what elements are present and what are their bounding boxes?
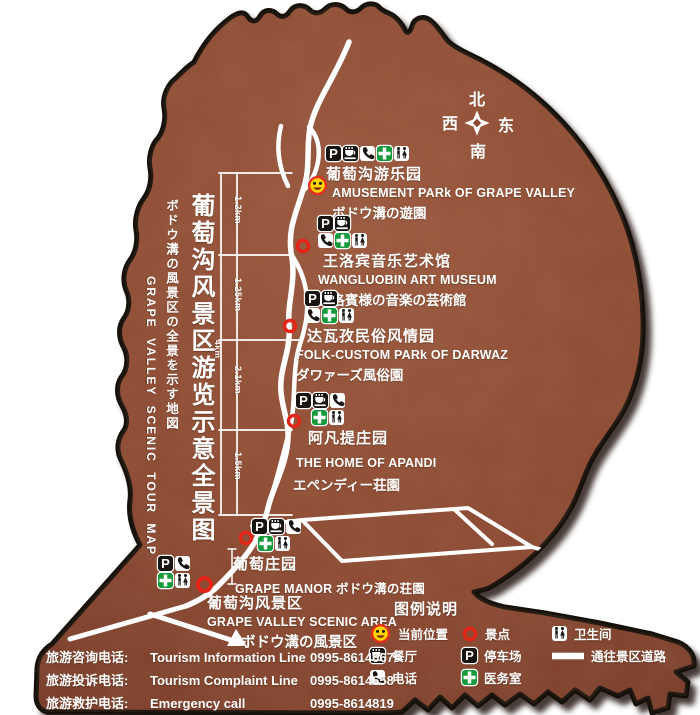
hotline-number: 0995-8614067 [310, 650, 394, 665]
scenic-spot-marker [295, 238, 311, 254]
scenic-spot-icon [462, 626, 478, 642]
scenic-spot-icon [195, 575, 214, 594]
poi-name-jp: エペンディー荘園 [293, 474, 436, 494]
facility-icon-row: P [326, 146, 575, 161]
medical-icon [377, 146, 392, 161]
compass-west-label: 西 [442, 110, 458, 134]
poi-scenic-area-entrance: 葡萄沟风景区 GRAPE VALLEY SCENIC AREA ボドウ溝の風景区 [207, 591, 397, 652]
parking-icon: P [326, 146, 341, 161]
tour-map-screenshot: 葡萄沟风景区游览示意全景图 ボドウ溝の風景区の全景を示す地図 GRAPE VAL… [0, 0, 700, 715]
facility-icon-row: P [252, 519, 425, 534]
scenic-spot-marker [195, 575, 214, 594]
legend-title: 图例说明 [394, 598, 666, 619]
hotline-row: 旅游救护电话:Emergency call0995-8614819 [46, 693, 394, 708]
restaurant-icon [313, 393, 328, 408]
distance-label-total: 4km [213, 340, 223, 359]
map-title-japanese: ボドウ溝の風景区の全景を示す地図 [162, 199, 181, 431]
poi-name-en: AMUSEMENT PARk OF GRAPE VALLEY [332, 186, 575, 200]
hotline-label-cn: 旅游救护电话: [46, 693, 150, 712]
poi-name-cn: 葡萄庄园 [233, 553, 425, 574]
medical-icon [335, 233, 350, 248]
restaurant-icon [343, 146, 358, 161]
legend-column: 景点P停车场医务室 [462, 625, 552, 686]
toilet-icon [175, 573, 190, 588]
facility-icon-row: P [296, 393, 436, 408]
svg-text:P: P [321, 216, 330, 231]
current-location-icon [307, 175, 328, 196]
medical-icon [312, 410, 327, 425]
phone-icon [286, 519, 301, 534]
poi-name-en: WANGLUOBIN ART MUSEUM [318, 273, 497, 287]
legend-item: P停车场 [462, 647, 552, 664]
svg-text:P: P [329, 146, 338, 161]
poi-name-jp: ダワァーズ風俗園 [296, 364, 508, 384]
facility-icon-row: P [158, 556, 190, 571]
facility-icons: P [296, 393, 436, 425]
toilet-icon [352, 233, 367, 248]
phone-icon [305, 308, 320, 323]
poi-name-cn: 葡萄沟游乐园 [326, 163, 575, 184]
hotline-number: 0995-8614819 [310, 696, 394, 711]
phone-icon [175, 556, 190, 571]
compass-east-label: 东 [498, 112, 514, 136]
svg-text:P: P [255, 519, 264, 534]
map-title-english: GRAPE VALLEY SCENIC TOUR MAP [144, 276, 158, 556]
facility-icon-row: P [305, 291, 508, 306]
facility-icons: P [158, 556, 190, 590]
legend-item: 医务室 [462, 669, 552, 686]
legend-item-label: 卫生间 [574, 624, 612, 643]
svg-text:P: P [308, 291, 317, 306]
medical-icon [462, 670, 477, 685]
hotline-row: 旅游投诉电话:Tourism Complaint Line0995-861465… [46, 670, 394, 685]
svg-text:P: P [299, 393, 308, 408]
phone-icon [360, 146, 375, 161]
distance-label-1: 1.2km [233, 196, 243, 224]
legend-column: 卫生间通往景区道路 [552, 625, 666, 686]
medical-icon [322, 308, 337, 323]
distance-label-3: 2.1km [233, 366, 243, 394]
poi-amusement-park: P 葡萄沟游乐园 AMUSEMENT PARk OF GRAPE VALLEY … [326, 146, 575, 222]
svg-text:P: P [161, 556, 170, 571]
facility-icon-row [305, 308, 508, 323]
parking-icon: P [318, 216, 333, 231]
legend-item: 卫生间 [552, 625, 666, 642]
poi-folk-custom-park: P 达瓦孜民俗风情园 FOLK-CUSTOM PARk OF DARWAZ ダワ… [296, 291, 508, 384]
poi-grape-manor: P 葡萄庄园 GRAPE MANOR ボドウ溝の荘園 [252, 519, 425, 597]
hotline-label-en: Tourism Information Line [150, 650, 310, 665]
legend-item: 通往景区道路 [552, 647, 666, 664]
map-title-chinese: 葡萄沟风景区游览示意全景图 [183, 193, 218, 544]
toilet-icon [329, 410, 344, 425]
facility-icon-row [312, 410, 436, 425]
parking-icon: P [296, 393, 311, 408]
facility-icon-row [318, 233, 497, 248]
poi-name-cn: 达瓦孜民俗风情园 [307, 325, 508, 346]
poi-name-cn: 葡萄沟风景区 [207, 592, 397, 613]
legend-item: 景点 [462, 625, 552, 642]
facility-icons: P [326, 146, 575, 161]
parking-icon: P [462, 648, 477, 663]
facility-icon-row [258, 536, 425, 551]
facility-icon-row: P [318, 216, 497, 231]
legend-item-label: 电话 [392, 668, 417, 687]
facility-icons: P [252, 519, 425, 551]
facility-icons: P [318, 216, 497, 248]
legend-item-label: 通往景区道路 [591, 646, 666, 665]
poi-name-en: THE HOME OF APANDI [296, 456, 436, 470]
medical-icon [258, 536, 273, 551]
phone-icon [318, 233, 333, 248]
scenic-spot-marker [286, 413, 302, 429]
hotline-label-cn: 旅游咨询电话: [46, 647, 150, 666]
toilet-icon [339, 308, 354, 323]
restaurant-icon [322, 291, 337, 306]
medical-icon [158, 573, 173, 588]
compass-star-icon [463, 109, 491, 137]
poi-name-cn: 阿凡提庄园 [308, 427, 436, 448]
hotline-list: 旅游咨询电话:Tourism Information Line0995-8614… [46, 647, 394, 715]
poi-name-cn: 王洛宾音乐艺术馆 [323, 250, 497, 271]
scenic-spot-icon [286, 413, 302, 429]
scenic-spot-marker [238, 530, 254, 546]
legend-item-label: 当前位置 [398, 624, 448, 643]
scenic-spot-icon [295, 238, 311, 254]
hotline-label-en: Tourism Complaint Line [150, 673, 310, 688]
hotline-number: 0995-8614658 [310, 673, 394, 688]
current-location-icon [370, 623, 391, 644]
toilet-icon [552, 626, 567, 641]
legend-item: 当前位置 [370, 625, 462, 642]
legend: 图例说明 当前位置餐厅电话景点P停车场医务室卫生间通往景区道路 [370, 598, 666, 686]
svg-text:P: P [465, 648, 474, 663]
scenic-spot-icon [238, 530, 254, 546]
road-icon [552, 652, 584, 660]
restaurant-icon [269, 519, 284, 534]
legend-item-label: 停车场 [484, 646, 522, 665]
legend-grid: 当前位置餐厅电话景点P停车场医务室卫生间通往景区道路 [370, 625, 666, 686]
scenic-spot-icon [282, 318, 298, 334]
hotline-label-cn: 旅游投诉电话: [46, 670, 150, 689]
poi-name-en: FOLK-CUSTOM PARk OF DARWAZ [296, 348, 508, 362]
parking-icon: P [252, 519, 267, 534]
distance-label-4: 1.5km [233, 452, 243, 480]
current-location-marker [307, 175, 328, 196]
facility-icon-row [158, 573, 190, 588]
facility-icons: P [305, 291, 508, 323]
hotline-row: 旅游咨询电话:Tourism Information Line0995-8614… [46, 647, 394, 662]
legend-item-label: 餐厅 [392, 646, 417, 665]
poi-home-of-apandi: P 阿凡提庄园 THE HOME OF APANDI エペンディー荘園 [296, 393, 436, 494]
compass-north-label: 北 [469, 86, 485, 110]
restaurant-icon [335, 216, 350, 231]
distance-label-2: 1.25km [233, 278, 243, 312]
legend-item-label: 景点 [485, 624, 510, 643]
phone-icon [330, 393, 345, 408]
legend-item-label: 医务室 [484, 668, 522, 687]
scenic-spot-marker [282, 318, 298, 334]
hotline-label-en: Emergency call [150, 696, 310, 711]
poi-name-en: GRAPE VALLEY SCENIC AREA [207, 615, 397, 629]
parking-icon: P [305, 291, 320, 306]
toilet-icon [275, 536, 290, 551]
toilet-icon [394, 146, 409, 161]
parking-icon: P [158, 556, 173, 571]
